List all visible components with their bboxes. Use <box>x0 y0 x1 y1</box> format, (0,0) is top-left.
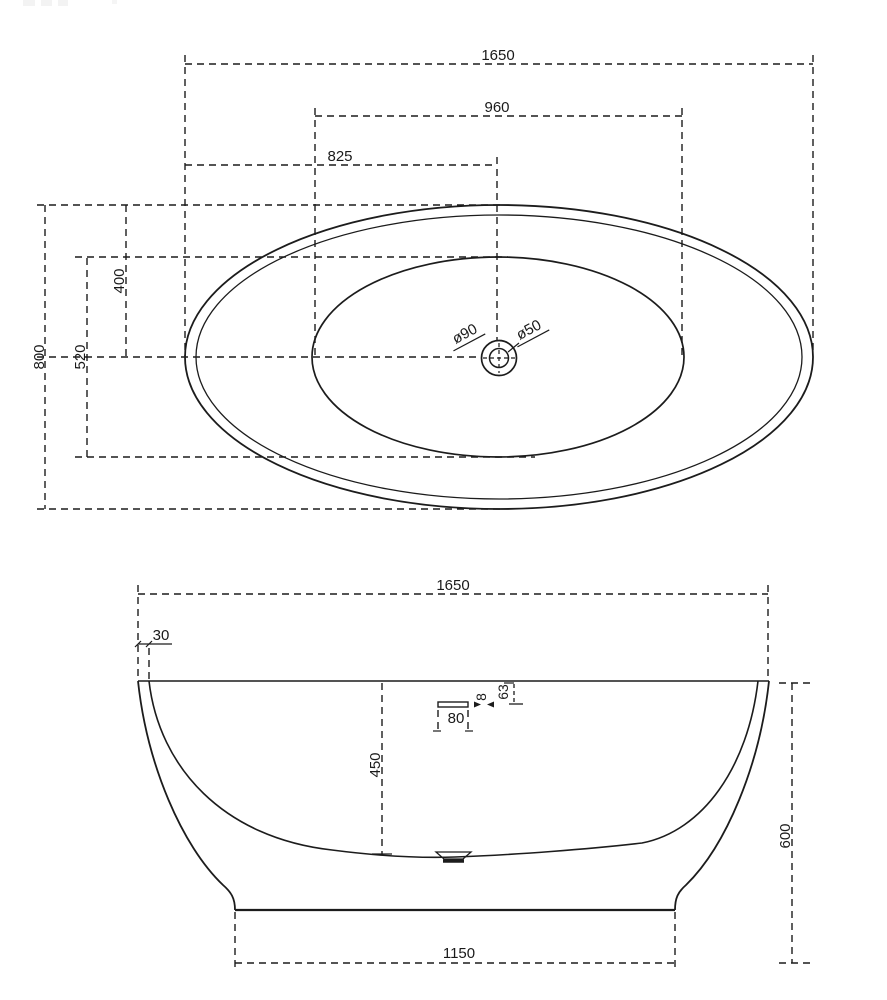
dim-overflow-width-label: 80 <box>448 710 465 727</box>
dim-half-width-label: 400 <box>111 268 128 293</box>
tub-outer-wall-right <box>675 681 769 910</box>
dim-overflow-height: 8 <box>473 693 494 708</box>
drain-inner-label: ø50 <box>513 316 544 343</box>
dim-drain-center-label: 825 <box>327 148 352 165</box>
dim-basin-width-label: 520 <box>72 344 89 369</box>
dim-basin-length: 960 <box>315 99 682 116</box>
dim-basin-length-label: 960 <box>484 99 509 116</box>
drain-inner-dim: ø50 <box>509 314 549 347</box>
dim-basin-width: 520 <box>72 258 89 457</box>
bathtub-technical-drawing: ø90 ø50 1650 <box>0 0 887 1000</box>
dim-top-width-label: 800 <box>31 344 48 369</box>
watermark-fragment <box>23 0 35 6</box>
dim-base-width-label: 1150 <box>443 945 475 962</box>
dim-depth: 450 <box>367 683 392 855</box>
extension-lines-horizontal <box>37 205 535 509</box>
watermark-fragment <box>112 0 117 4</box>
tub-outer-wall-left <box>138 681 235 910</box>
arrow-mark <box>474 702 481 708</box>
dim-depth-label: 450 <box>367 752 384 777</box>
watermark-fragment <box>41 0 52 6</box>
dim-height: 600 <box>777 683 814 963</box>
dim-side-length: 1650 <box>138 577 768 681</box>
arrow-mark <box>487 702 494 708</box>
dim-overflow-offset-label: 63 <box>495 684 511 700</box>
side-view: 1650 30 450 80 8 <box>135 577 814 972</box>
overflow-slot <box>438 702 468 707</box>
dim-half-width: 400 <box>111 205 128 357</box>
dim-height-label: 600 <box>777 823 794 848</box>
dim-base-width: 1150 <box>235 912 675 972</box>
drain-outer-dim: ø90 <box>445 318 485 351</box>
dim-side-length-label: 1650 <box>436 577 469 594</box>
drawing-sheet: ø90 ø50 1650 <box>0 0 887 1000</box>
watermark-fragment <box>58 0 68 6</box>
drain <box>482 341 517 376</box>
watermark-marks <box>23 0 117 6</box>
dim-rim-offset-label: 30 <box>153 627 170 644</box>
dim-drain-center-length: 825 <box>185 148 497 165</box>
dim-overflow-offset: 63 <box>495 683 523 704</box>
dim-top-length-label: 1650 <box>481 47 514 64</box>
dim-top-width: 800 <box>31 205 48 509</box>
dim-overflow-width: 80 <box>433 710 473 732</box>
drain-outer-label: ø90 <box>449 320 480 347</box>
top-view: ø90 ø50 1650 <box>31 47 813 509</box>
dim-rim-offset: 30 <box>135 627 172 680</box>
dim-overflow-height-label: 8 <box>473 693 489 701</box>
dim-top-length: 1650 <box>185 47 813 64</box>
